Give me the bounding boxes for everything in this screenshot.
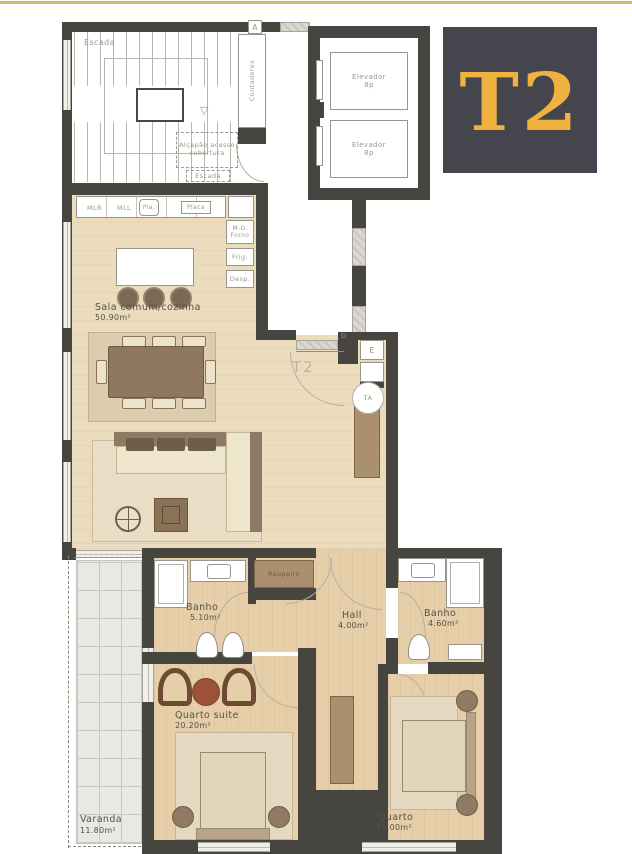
window — [362, 842, 456, 852]
window — [63, 462, 71, 542]
window — [198, 842, 270, 852]
meters-closet: Contadores — [238, 34, 266, 128]
elevator-2-label: Elevador — [352, 141, 386, 149]
stairs-label: Escada — [84, 38, 115, 47]
coffee-table — [154, 498, 188, 532]
sink-basin — [207, 564, 231, 579]
unit-type-badge: T2 — [443, 27, 597, 173]
pantry-label: Desp. — [230, 275, 251, 283]
kitchen-corner-cabinet — [228, 196, 254, 218]
door-arc — [236, 144, 264, 182]
section-marker-a: A — [248, 20, 262, 34]
cooktop-label: Placa — [187, 204, 205, 211]
hatch-stair-box: Escada — [186, 170, 230, 182]
wall — [256, 195, 268, 335]
fridge-label: Frig. — [232, 253, 248, 261]
unit-entry-label: T2 — [292, 358, 315, 376]
wall — [484, 548, 502, 854]
unit-type-badge-text: T2 — [443, 27, 597, 173]
roof-hatch-label: Alçapão acesso cobertura — [177, 142, 237, 158]
living-room-area: 50.90m² — [95, 313, 131, 322]
dishwasher-label: MLL — [117, 204, 131, 212]
hall-area: 4.00m² — [338, 621, 369, 630]
elevator-1: Elevador 8p — [330, 52, 408, 110]
bedroom-bed — [402, 720, 466, 792]
nightstand — [268, 806, 290, 828]
bedroom-area: 15.00m² — [376, 823, 412, 832]
elevator-door — [316, 126, 323, 166]
wall — [262, 22, 280, 32]
nightstand — [172, 806, 194, 828]
bath-niche — [448, 644, 482, 660]
sofa-chaise-arm — [250, 432, 262, 532]
water-heater-marker-text: TA — [364, 394, 373, 402]
dining-table — [108, 346, 204, 398]
oven-microwave-box: M.O. Forno — [226, 220, 254, 244]
washer-label: MLR — [87, 204, 102, 212]
electrical-box: E — [360, 340, 384, 360]
wall — [62, 22, 248, 32]
hall-label: Hall — [342, 610, 362, 621]
floor-plan-page: T2 ▽ Escada A Contadores Alçapão acesso … — [0, 0, 632, 854]
sofa-cushion — [157, 438, 185, 451]
sink-basin — [411, 563, 435, 578]
side-table — [115, 506, 141, 532]
bathroom2-label: Banho — [424, 608, 456, 619]
sink-box: Pia. — [139, 199, 159, 216]
balcony-label: Varanda — [80, 814, 122, 825]
wall — [386, 332, 398, 560]
marker-d: D — [341, 332, 346, 340]
nightstand — [456, 794, 478, 816]
meters-closet-label: Contadores — [248, 60, 256, 101]
bathtub — [154, 560, 188, 608]
wall — [310, 102, 324, 118]
water-heater-marker: TA — [352, 382, 384, 414]
round-table — [192, 678, 220, 706]
window — [63, 40, 71, 110]
sink-label: Pia. — [143, 204, 155, 211]
dining-chair — [152, 398, 176, 409]
wall — [62, 183, 268, 195]
stair-direction-arrow: ▽ — [200, 104, 209, 117]
wall — [386, 558, 398, 588]
suite-bed — [200, 752, 266, 830]
bedroom-headboard — [466, 712, 476, 800]
suite-label: Quarto suite — [175, 710, 239, 721]
stair-landing — [136, 88, 184, 122]
wall — [378, 664, 388, 790]
shower — [446, 558, 484, 608]
elevator-1-label: Elevador — [352, 73, 386, 81]
hatch-stair-label: Escada — [195, 172, 221, 180]
wall — [352, 200, 366, 228]
electrical-box-label: E — [369, 346, 374, 355]
dining-chair — [122, 398, 146, 409]
window — [63, 352, 71, 440]
nightstand — [456, 690, 478, 712]
balcony-area: 11.80m² — [80, 826, 116, 835]
armchair — [222, 668, 256, 706]
dining-chair — [205, 360, 216, 384]
living-room-label: Sala comum/cozinha — [95, 302, 201, 313]
corridor-cabinet — [330, 696, 354, 784]
suite-headboard — [196, 828, 270, 840]
coffee-table-inner — [162, 506, 180, 524]
bathroom1-label: Banho — [186, 602, 218, 613]
window — [352, 228, 366, 266]
shower-inner — [450, 562, 480, 604]
window — [63, 222, 71, 328]
vanity-counter — [190, 560, 246, 582]
vanity-counter — [398, 558, 446, 582]
suite-area: 20.20m² — [175, 721, 211, 730]
elevator-1-capacity: 8p — [352, 81, 386, 89]
elevator-2-capacity: 8p — [352, 149, 386, 157]
elevator-door — [316, 60, 323, 100]
entry-lintel — [296, 340, 338, 350]
technical-box — [360, 362, 384, 382]
bedroom-label: Quarto — [378, 812, 413, 823]
bathroom2-area: 4.60m² — [428, 619, 459, 628]
wall — [352, 266, 366, 306]
sofa-cushion — [126, 438, 154, 451]
sofa-cushion — [188, 438, 216, 451]
dining-chair — [182, 398, 206, 409]
kitchen-island — [116, 248, 194, 286]
roof-hatch-box: Alçapão acesso cobertura — [176, 132, 238, 168]
oven-microwave-label: M.O. Forno — [227, 225, 253, 239]
elevator-2: Elevador 8p — [330, 120, 408, 178]
window — [280, 22, 310, 32]
balcony-floor — [76, 560, 142, 844]
bathroom1-area: 5.10m² — [190, 613, 221, 622]
wall — [386, 638, 398, 664]
wall — [298, 648, 316, 854]
dining-chair — [96, 360, 107, 384]
kitchen-counter: MLR MLL Pia. Placa — [76, 196, 226, 218]
wall — [238, 128, 266, 144]
fridge-box: Frig. — [226, 248, 254, 266]
armchair — [158, 668, 192, 706]
section-marker-a-text: A — [252, 23, 258, 32]
wall — [428, 662, 484, 674]
balcony-dashed-edge — [68, 556, 70, 848]
cooktop-box: Placa — [181, 201, 211, 214]
bathtub-inner — [158, 564, 184, 604]
wall — [256, 330, 296, 340]
pantry-box: Desp. — [226, 270, 254, 288]
top-gold-line — [0, 1, 632, 4]
balcony-dashed-edge — [68, 846, 146, 848]
balcony-dashed-edge — [74, 557, 144, 559]
